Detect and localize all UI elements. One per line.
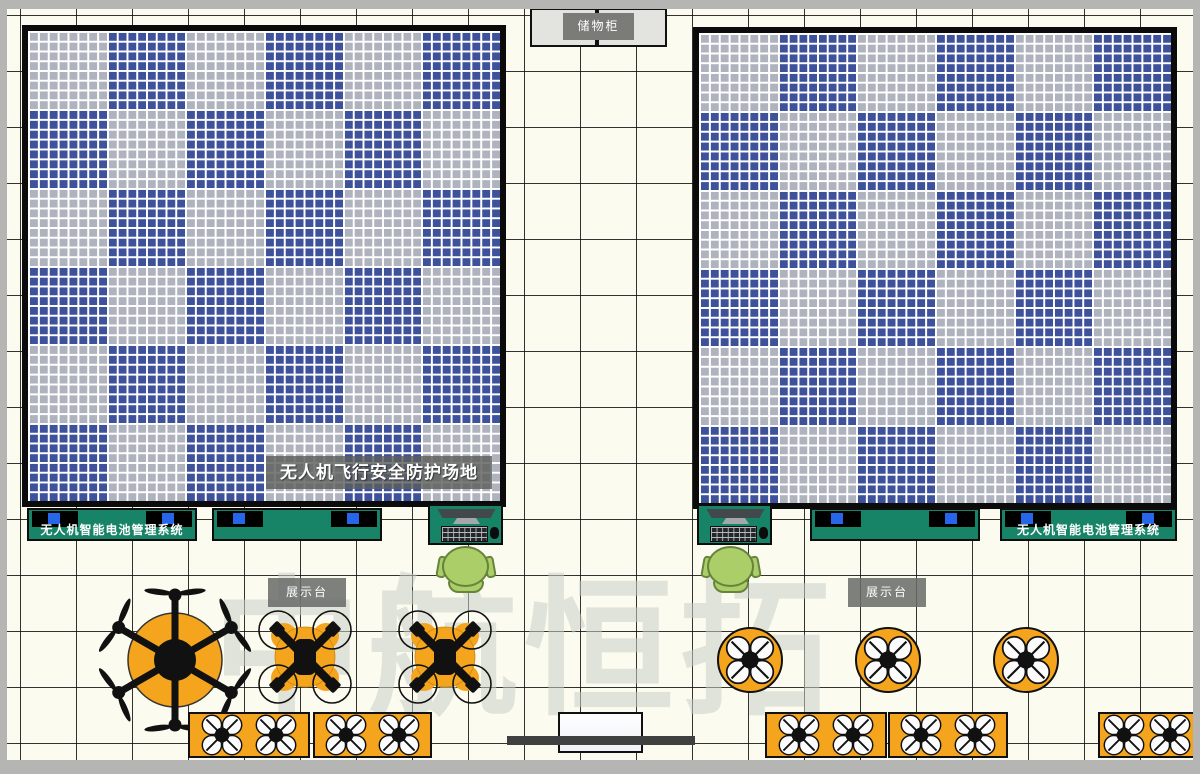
quadcopter-x-drones-icon [240,592,510,722]
mesh-panel [1092,268,1171,346]
quadcopter-icon [899,713,943,757]
chair-right [705,546,757,593]
mesh-panel [778,111,857,189]
drone-bench [888,712,1008,758]
mesh-panel [107,109,186,187]
monitor [929,511,975,527]
monitor-top-icon [435,509,498,518]
mesh-panel [264,266,343,344]
landing-pad [717,627,783,693]
mesh-panel [856,33,935,111]
drone-bench [313,712,432,758]
mesh-panel [856,111,935,189]
keyboard-icon [441,526,488,542]
mesh-panel [1014,346,1093,424]
battery-table-3 [810,508,980,541]
drone-lab-floor-plan: 中航恒拓 储物柜 无人机飞行安全防护场地 无人机智能电池管理系统 无人机智能电池… [0,0,1200,774]
mesh-panel [699,111,778,189]
quadcopter-icon [953,713,997,757]
quadcopter-icon [724,634,776,686]
mesh-panel [699,190,778,268]
monitor-screen [831,513,843,524]
battery-system-label: 无人机智能电池管理系统 [29,521,195,538]
quadcopter-icon [862,634,914,686]
mesh-panel [421,266,500,344]
mesh-panel [421,31,500,109]
mesh-panel [1092,346,1171,424]
mesh-panel [185,188,264,266]
monitor-stand-icon [453,518,480,524]
mesh-panel [856,425,935,503]
drone-bench [188,712,310,758]
monitor [331,511,377,527]
mesh-panel [107,266,186,344]
quadcopter-icon [1000,634,1052,686]
monitor-top-icon [704,509,767,518]
mesh-panel [778,33,857,111]
mesh-panel [699,33,778,111]
battery-system-label: 无人机智能电池管理系统 [1002,521,1175,538]
mesh-panel [185,344,264,422]
mesh-panel [1092,33,1171,111]
mesh-panel [935,111,1014,189]
mesh-panel [421,344,500,422]
mesh-panel [935,425,1014,503]
mesh-panel [856,268,935,346]
monitor [815,511,861,527]
mesh-panel [28,109,107,187]
mesh-panel [778,268,857,346]
mesh-panel [699,268,778,346]
quadcopter-icon [254,713,298,757]
mesh-panel [343,31,422,109]
mesh-panel [185,266,264,344]
mesh-panel [1014,268,1093,346]
keyboard-icon [710,526,757,542]
display-stand-label-left: 展示台 [268,578,346,607]
workstation-desk-right [697,504,772,545]
center-table [558,712,643,753]
mesh-panel [264,344,343,422]
flight-cage-label: 无人机飞行安全防护场地 [266,456,492,489]
mesh-panel [1014,190,1093,268]
quadcopter-icon [1148,713,1192,757]
mesh-panel [107,344,186,422]
mesh-panel [264,109,343,187]
monitor-screen [945,513,957,524]
mesh-panel [699,425,778,503]
chair-seat [707,546,754,587]
mesh-panel [107,188,186,266]
mesh-panel [1014,33,1093,111]
mesh-panel [1092,190,1171,268]
mouse-icon [759,527,768,539]
mesh-panel [343,109,422,187]
chair-left [440,546,492,593]
quadcopter-icon [377,713,421,757]
mesh-panel [699,346,778,424]
mesh-panel [778,190,857,268]
workstation-desk-left [428,504,503,545]
quadcopter-icon [831,713,875,757]
flight-cage-left: 无人机飞行安全防护场地 [22,25,506,507]
mesh-panel [185,31,264,109]
drone-bench [1098,712,1196,758]
mouse-icon [490,527,499,539]
barrier-bar [507,736,695,745]
mesh-panel [343,344,422,422]
mesh-panel [1014,425,1093,503]
mesh-panel [1014,111,1093,189]
battery-table-2 [212,508,382,541]
quadcopter-icon [1102,713,1146,757]
display-stand-label-right: 展示台 [848,578,926,607]
battery-table-1: 无人机智能电池管理系统 [27,508,197,541]
monitor-screen [347,513,359,524]
mesh-panel [28,344,107,422]
mesh-panel [28,188,107,266]
flight-cage-right [693,27,1177,509]
monitor-screen [233,513,245,524]
quadcopter-icon [324,713,368,757]
drone-bench [765,712,887,758]
landing-pad [855,627,921,693]
mesh-panel [778,346,857,424]
mesh-panel [28,266,107,344]
mesh-panel [778,425,857,503]
chair-seat [442,546,489,587]
monitor [217,511,263,527]
mesh-panel [185,423,264,501]
monitor-stand-icon [722,518,749,524]
mesh-panel [935,268,1014,346]
mesh-panel [856,346,935,424]
mesh-panel [1092,111,1171,189]
mesh-panel [856,190,935,268]
quadcopter-icon [200,713,244,757]
mesh-panel [107,423,186,501]
mesh-panel [28,31,107,109]
mesh-panel [421,188,500,266]
quadcopter-icon [777,713,821,757]
mesh-panel [264,188,343,266]
landing-pad [993,627,1059,693]
mesh-panel [185,109,264,187]
mesh-panel [421,109,500,187]
mesh-panel [264,31,343,109]
battery-table-4: 无人机智能电池管理系统 [1000,508,1177,541]
storage-cabinet-label: 储物柜 [563,13,634,40]
mesh-panel [935,346,1014,424]
mesh-panel [28,423,107,501]
mesh-panel [935,33,1014,111]
mesh-panel [343,188,422,266]
mesh-panel [343,266,422,344]
mesh-panel [935,190,1014,268]
mesh-panel [1092,425,1171,503]
mesh-panel [107,31,186,109]
